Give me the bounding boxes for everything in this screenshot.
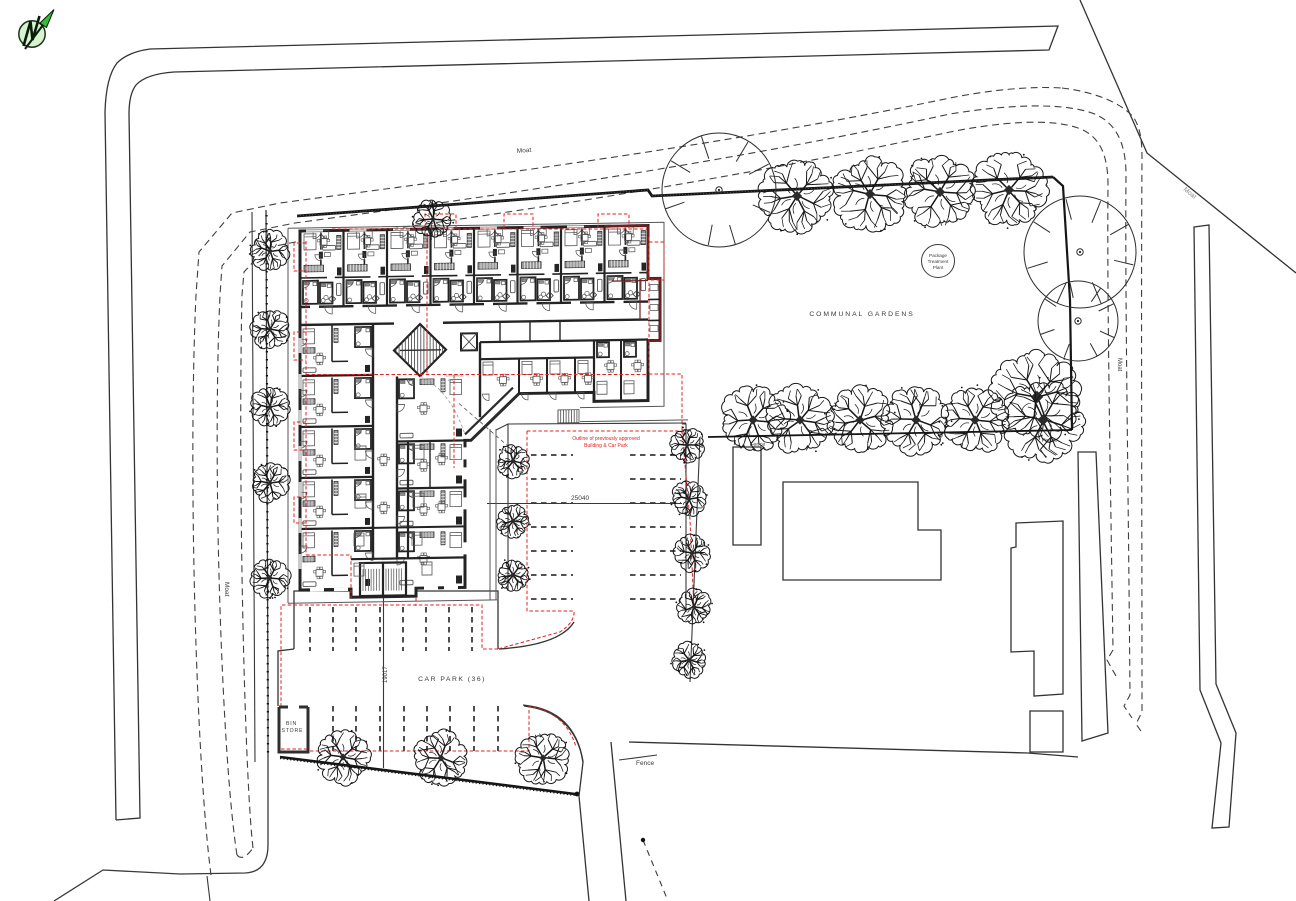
svg-text:Moat: Moat (223, 582, 230, 597)
svg-text:19017: 19017 (383, 666, 389, 683)
svg-text:HALL: HALL (448, 378, 456, 382)
svg-text:Moat: Moat (517, 147, 532, 155)
svg-text:Moat: Moat (1116, 358, 1122, 372)
svg-text:Fence: Fence (636, 760, 654, 767)
svg-text:BIN: BIN (286, 721, 297, 727)
svg-text:CAR PARK (36): CAR PARK (36) (418, 676, 486, 683)
svg-text:Plant: Plant (933, 265, 944, 270)
svg-text:25040: 25040 (571, 495, 589, 502)
svg-text:COMMUNAL GARDENS: COMMUNAL GARDENS (809, 311, 914, 318)
svg-text:Package: Package (929, 253, 947, 258)
svg-text:Building & Car Park: Building & Car Park (584, 443, 628, 449)
svg-text:Outline of previously approved: Outline of previously approved (572, 436, 640, 442)
svg-text:Treatment: Treatment (928, 259, 949, 264)
svg-text:STORE: STORE (282, 728, 304, 734)
